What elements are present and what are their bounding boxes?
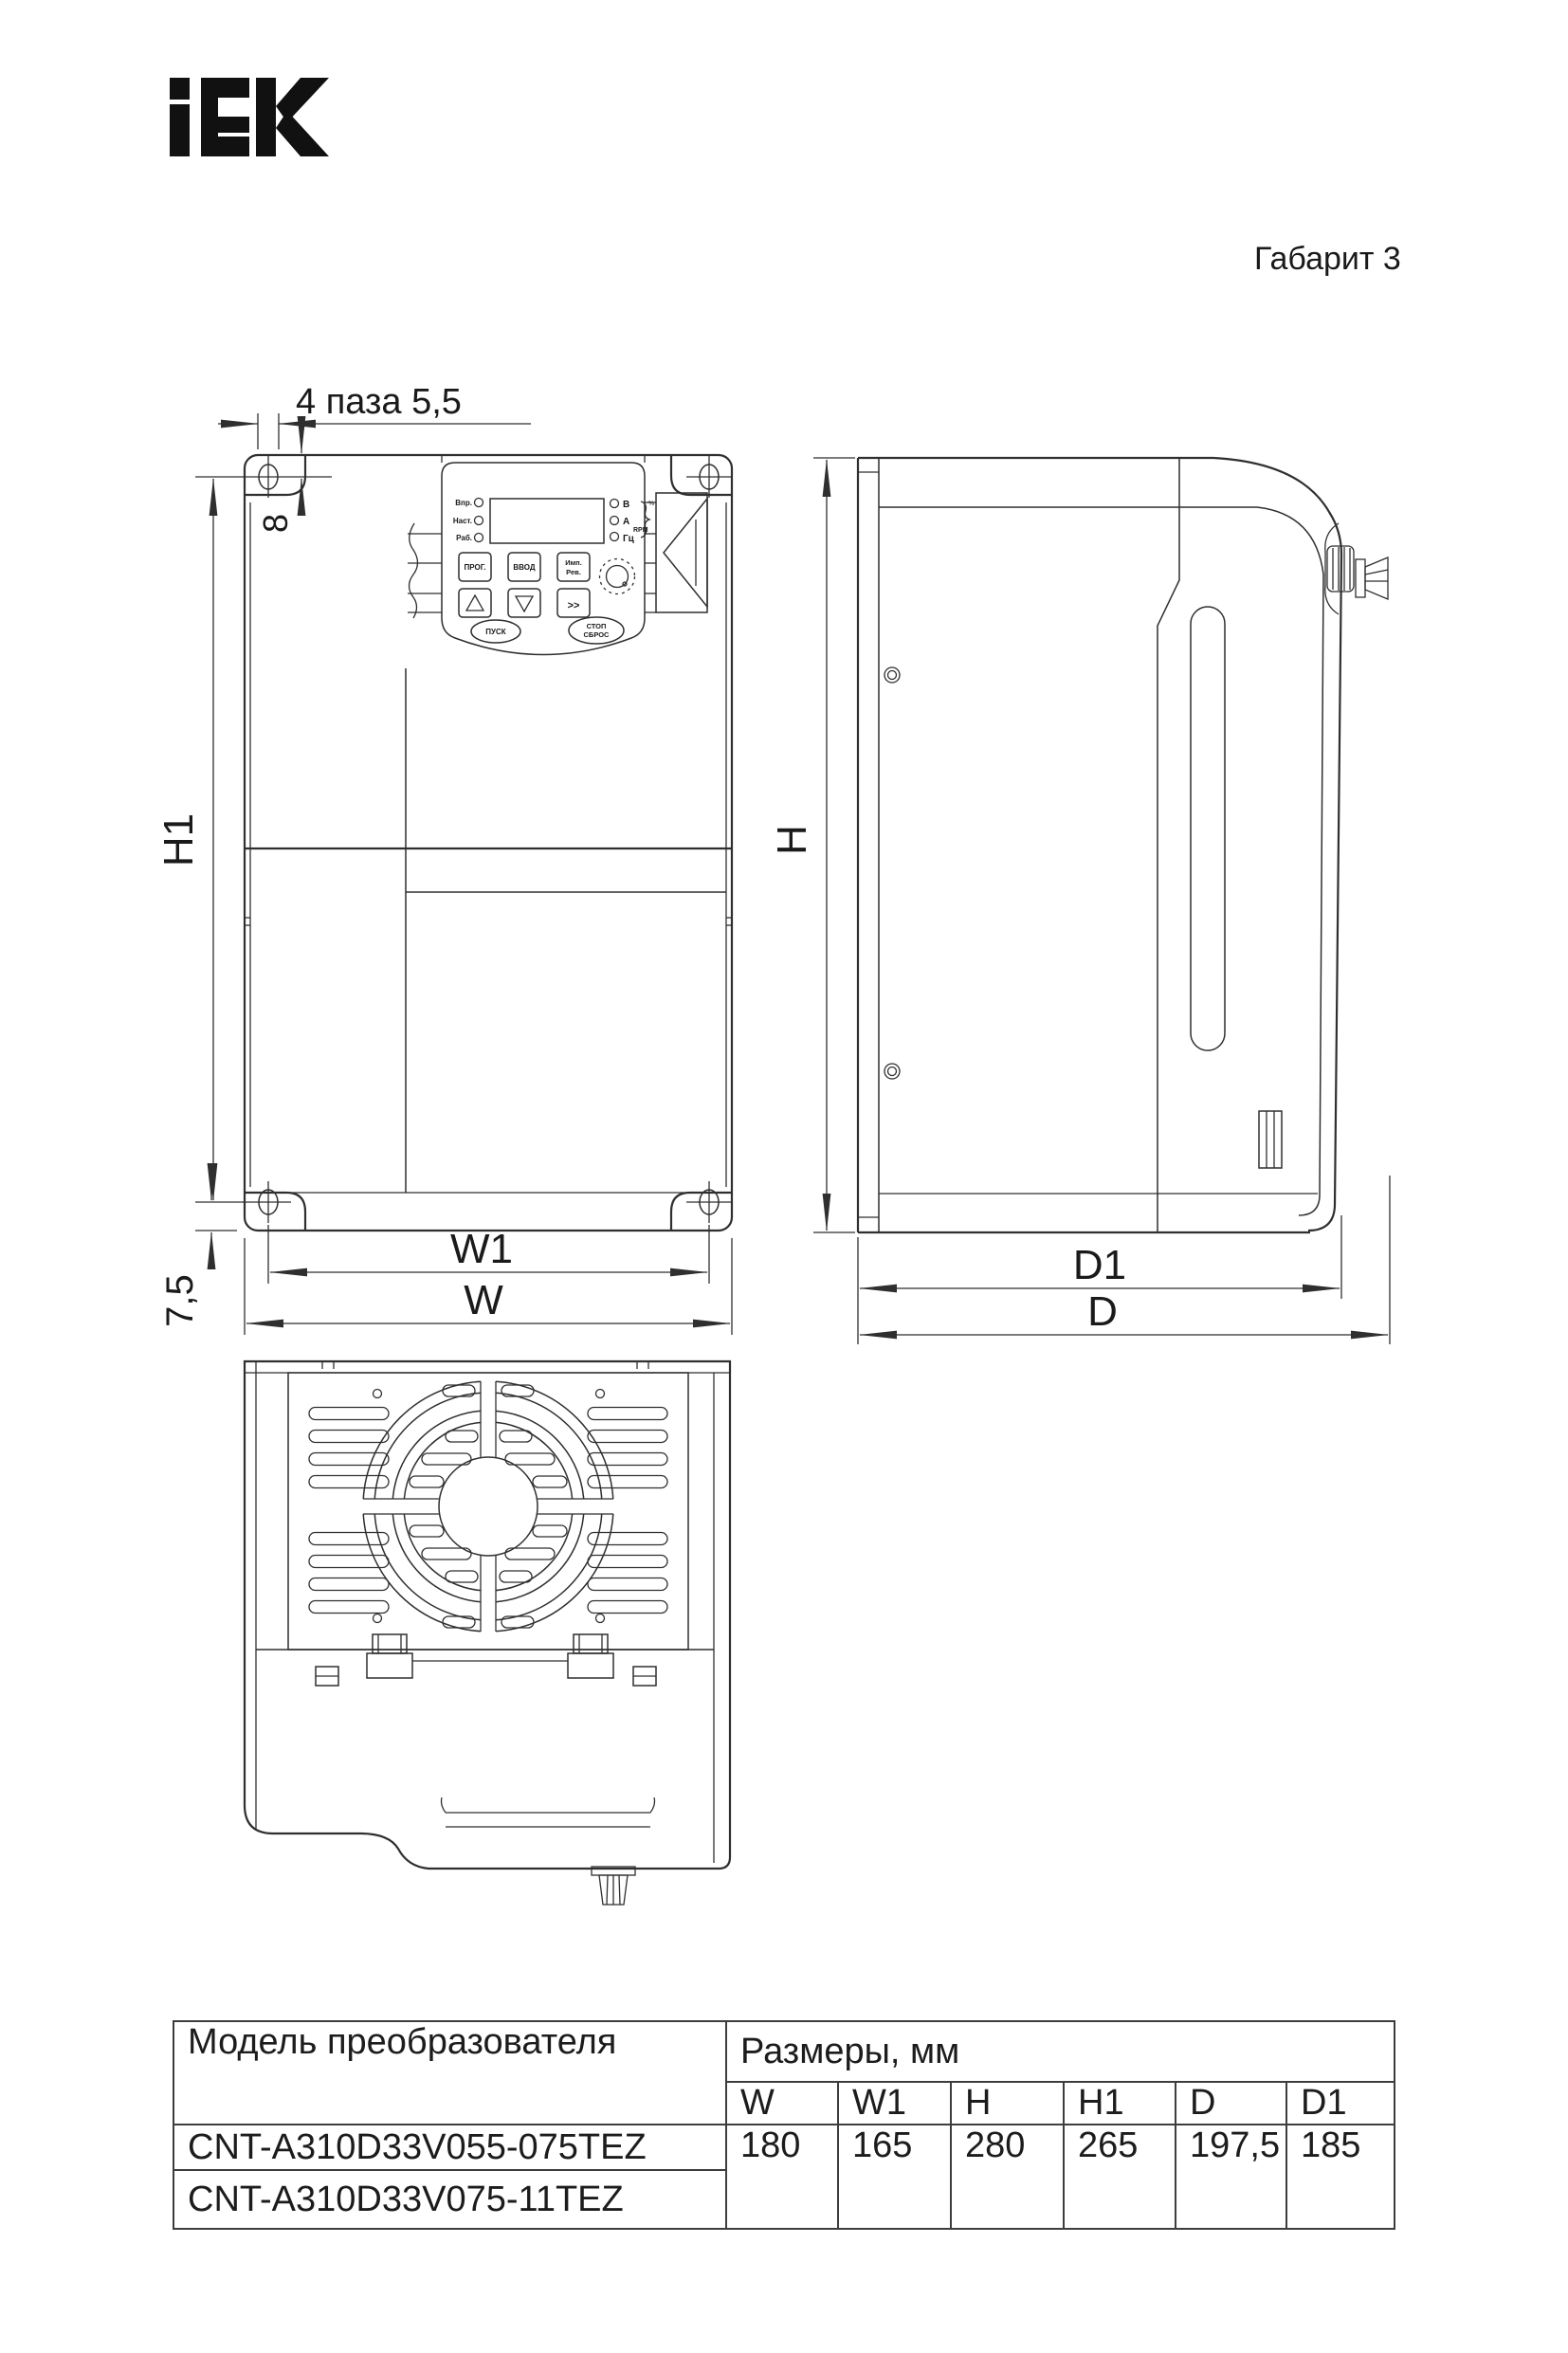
prog-button-label: ПРОГ. [465, 563, 486, 572]
run-button-label: ПУСК [485, 628, 506, 636]
dim-d-label: D [1087, 1288, 1118, 1335]
led-label-fwd: Впр. [455, 499, 472, 507]
table-header-row: Модель преобразователя Размеры, мм [173, 2021, 1395, 2082]
bottom-view [245, 1361, 730, 1905]
display-screen [490, 499, 604, 543]
col-h1: H1 [1064, 2082, 1176, 2125]
dim-h1-label: H1 [155, 813, 202, 866]
col-h: H [951, 2082, 1064, 2125]
front-view: Впр. Наст. Раб. В А Гц % RPM ПРОГ. ВВОД … [195, 413, 732, 1335]
slots-dim-label: 4 паза 5,5 [296, 382, 462, 422]
table-row: CNT-A310D33V055-075TEZ 180 165 280 265 1… [173, 2125, 1395, 2170]
enter-button-label: ВВОД [513, 563, 535, 572]
potentiometer-knob [600, 559, 635, 594]
dim-75-label: 7,5 [159, 1274, 201, 1327]
value-w1: 165 [838, 2125, 951, 2229]
down-arrow-icon [516, 596, 533, 611]
side-dimensions [813, 458, 1390, 1344]
sizes-header-cell: Размеры, мм [726, 2021, 1395, 2082]
model-header-cell: Модель преобразователя [173, 2021, 726, 2125]
heatsink-clamp [645, 493, 707, 612]
dim-w-label: W [464, 1277, 503, 1323]
dim-w1-label: W1 [450, 1226, 513, 1272]
dim-8-label: 8 [256, 514, 295, 533]
col-w1: W1 [838, 2082, 951, 2125]
status-leds-left [475, 499, 483, 542]
jog-rev-label-1: Имп. [565, 558, 582, 567]
variant-label: Габарит 3 [1254, 241, 1401, 277]
front-dimensions [195, 413, 732, 1335]
up-arrow-icon [466, 595, 483, 611]
dim-h-label: H [769, 825, 815, 855]
fan-grill [361, 1379, 615, 1635]
unit-amp-label: А [623, 517, 629, 527]
value-d: 197,5 [1176, 2125, 1286, 2229]
reset-label: СБРОС [584, 630, 611, 639]
down-arrow-button [508, 589, 540, 617]
cover-latches [256, 1634, 714, 1686]
jog-rev-label-2: Рев. [566, 568, 581, 576]
unit-hz-label: Гц [623, 534, 635, 544]
terminal-panel [442, 1797, 655, 1827]
unit-volt-label: В [623, 500, 629, 510]
model-cell-2: CNT-A310D33V075-11TEZ [173, 2170, 726, 2229]
left-fins [408, 523, 442, 618]
cable-gland [592, 1867, 635, 1905]
iek-logo [170, 78, 329, 156]
keypad: Впр. Наст. Раб. В А Гц % RPM ПРОГ. ВВОД … [442, 463, 654, 655]
led-label-run: Раб. [456, 534, 472, 542]
jog-rev-button [557, 553, 590, 581]
value-d1: 185 [1286, 2125, 1395, 2229]
value-w: 180 [726, 2125, 838, 2229]
col-w: W [726, 2082, 838, 2125]
mounting-slot-holes [259, 456, 732, 1223]
model-cell-1: CNT-A310D33V055-075TEZ [173, 2125, 726, 2170]
col-d: D [1176, 2082, 1286, 2125]
up-arrow-button [459, 589, 491, 617]
side-view [813, 458, 1390, 1344]
dimensions-table: Модель преобразователя Размеры, мм W W1 … [173, 2020, 1395, 2230]
shift-button-label: >> [568, 600, 580, 611]
dimension-drawing: Габарит 3 [0, 0, 1568, 2353]
stop-label: СТОП [587, 622, 607, 630]
status-leds-right [611, 500, 619, 541]
value-h: 280 [951, 2125, 1064, 2229]
side-knob [1325, 523, 1388, 614]
led-label-set: Наст. [453, 517, 472, 525]
col-d1: D1 [1286, 2082, 1395, 2125]
percent-label: % [648, 501, 654, 507]
rpm-label: RPM [633, 527, 648, 534]
value-h1: 265 [1064, 2125, 1176, 2229]
dim-d1-label: D1 [1073, 1242, 1126, 1288]
